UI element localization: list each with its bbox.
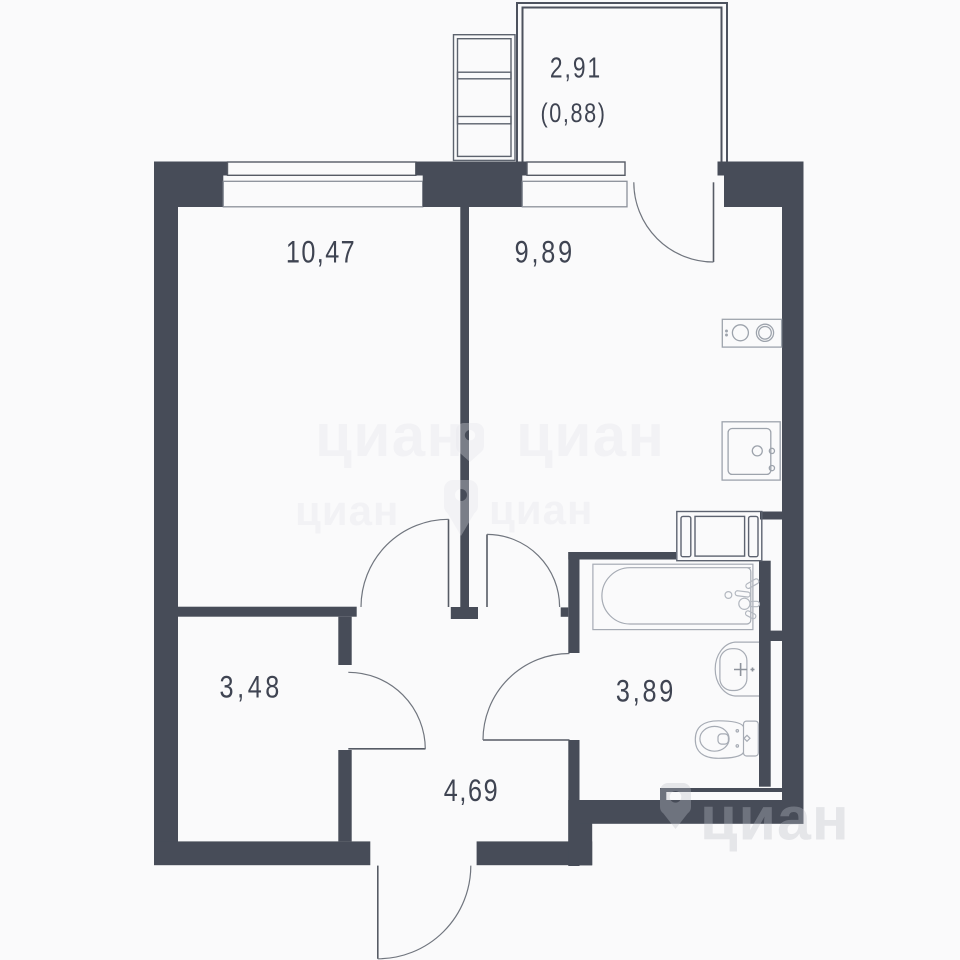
svg-text:циан: циан bbox=[700, 785, 850, 853]
svg-text:циан: циан bbox=[295, 487, 399, 534]
svg-text:9,89: 9,89 bbox=[515, 235, 575, 270]
svg-text:циан: циан bbox=[315, 402, 464, 469]
svg-text:2,91: 2,91 bbox=[550, 53, 602, 84]
svg-text:(0,88): (0,88) bbox=[540, 99, 606, 129]
svg-text:3,89: 3,89 bbox=[616, 674, 676, 709]
svg-text:циан: циан bbox=[489, 486, 593, 533]
svg-text:10,47: 10,47 bbox=[286, 235, 356, 270]
svg-text:3,48: 3,48 bbox=[219, 670, 282, 705]
svg-text:4,69: 4,69 bbox=[444, 773, 499, 808]
svg-text:циан: циан bbox=[516, 402, 665, 469]
